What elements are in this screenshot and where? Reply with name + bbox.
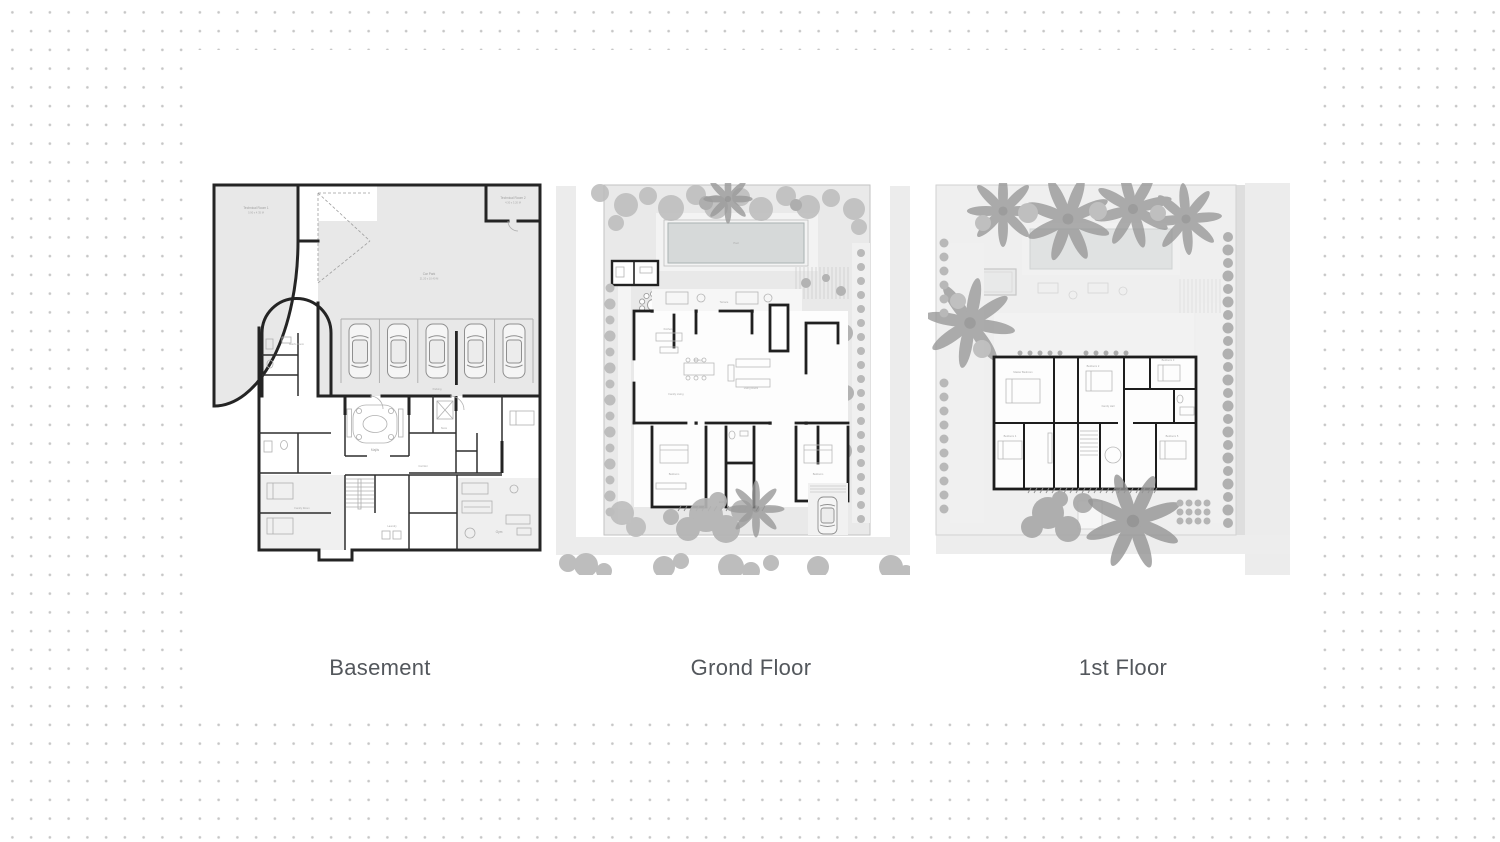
- room-label: Technical Room 2: [500, 196, 526, 200]
- room-label: Maid's Room: [289, 342, 304, 346]
- pool-label: Pool: [733, 241, 739, 245]
- room-label: Corridor: [418, 464, 428, 468]
- side-road: [890, 186, 910, 537]
- room-label: Bedroom: [813, 472, 824, 476]
- room-label: Bedroom 5: [1166, 434, 1179, 438]
- room-label: Bedroom 2: [1087, 364, 1100, 368]
- room-label: Parking: [433, 387, 442, 391]
- room-label: Bedroom 3: [1162, 358, 1175, 362]
- car-icon: [388, 324, 410, 378]
- room-dim-label: 21.20 x 10.40 M: [420, 277, 439, 281]
- palm-tree-icon: [728, 481, 785, 538]
- car-icon: [426, 324, 448, 378]
- side-road: [1245, 183, 1290, 575]
- room-dim-label: 4.30 x 3.20 M: [505, 201, 521, 205]
- room-label: Gym: [496, 530, 503, 534]
- ground-floor-plan[interactable]: Pool: [556, 183, 910, 575]
- side-strip: [1236, 185, 1245, 535]
- room-label: Dining: [694, 358, 702, 362]
- room-label: Family Hall: [1102, 404, 1115, 408]
- car-icon: [818, 497, 837, 534]
- room-label: Laundry: [387, 524, 397, 528]
- swimming-pool: Pool: [664, 220, 808, 266]
- ground-plan-drawing: Pool: [556, 183, 910, 575]
- room-label: Technical Room 1: [243, 206, 269, 210]
- room-label: Family Living: [668, 392, 684, 396]
- basement-plan-drawing: Technical Room 1 5.90 x 4.35 M Technical…: [212, 183, 542, 567]
- house-footprint: [634, 311, 848, 507]
- pool-house: [612, 261, 658, 285]
- basement-caption: Basement: [230, 655, 530, 681]
- room-label: Bedroom 4: [1004, 434, 1017, 438]
- first-floor-caption: 1st Floor: [973, 655, 1273, 681]
- first-floor-plan[interactable]: Master Bedroom Bedroom 2 Bedroom 3 Bedro…: [928, 183, 1290, 575]
- basement-floor-plan[interactable]: Technical Room 1 5.90 x 4.35 M Technical…: [212, 183, 542, 567]
- ground-floor-caption: Grond Floor: [601, 655, 901, 681]
- first-plan-drawing: Master Bedroom Bedroom 2 Bedroom 3 Bedro…: [928, 183, 1290, 575]
- room-dim-label: 5.90 x 4.35 M: [248, 211, 264, 215]
- hedge-left: [605, 284, 616, 517]
- room-label: Terrace: [720, 300, 729, 304]
- room-label: Living Room: [744, 386, 758, 390]
- car-icon: [349, 324, 371, 378]
- street-trees: [559, 553, 910, 575]
- stall-divider-wall: [455, 331, 458, 385]
- room-label: Master Bedroom: [1013, 370, 1032, 374]
- room-label: Car Park: [423, 272, 436, 276]
- room-label: Family Room: [294, 506, 309, 510]
- room-label: Majlis: [371, 448, 380, 452]
- car-icon: [465, 324, 487, 378]
- room-label: Kitchen: [664, 327, 673, 331]
- ramp-wedge-area: [214, 185, 298, 406]
- page-canvas: Technical Room 1 5.90 x 4.35 M Technical…: [0, 0, 1500, 842]
- hedge-right: [1223, 232, 1234, 528]
- room-label: Store: [441, 426, 448, 430]
- room-label: Entry: [719, 500, 726, 504]
- room-label: Bedroom: [669, 472, 680, 476]
- car-icon: [503, 324, 525, 378]
- side-road: [556, 186, 576, 537]
